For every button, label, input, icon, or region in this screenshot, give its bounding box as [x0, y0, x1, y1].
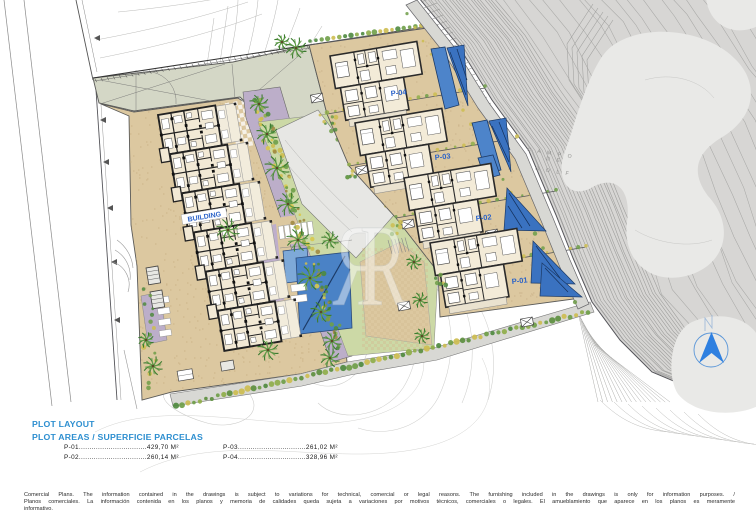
svg-text:P-04: P-04	[390, 87, 408, 98]
svg-text:P-02: P-02	[475, 212, 492, 223]
svg-text:R: R	[360, 201, 407, 332]
svg-text:P-03: P-03	[434, 151, 451, 162]
svg-text:P-01: P-01	[511, 275, 528, 286]
